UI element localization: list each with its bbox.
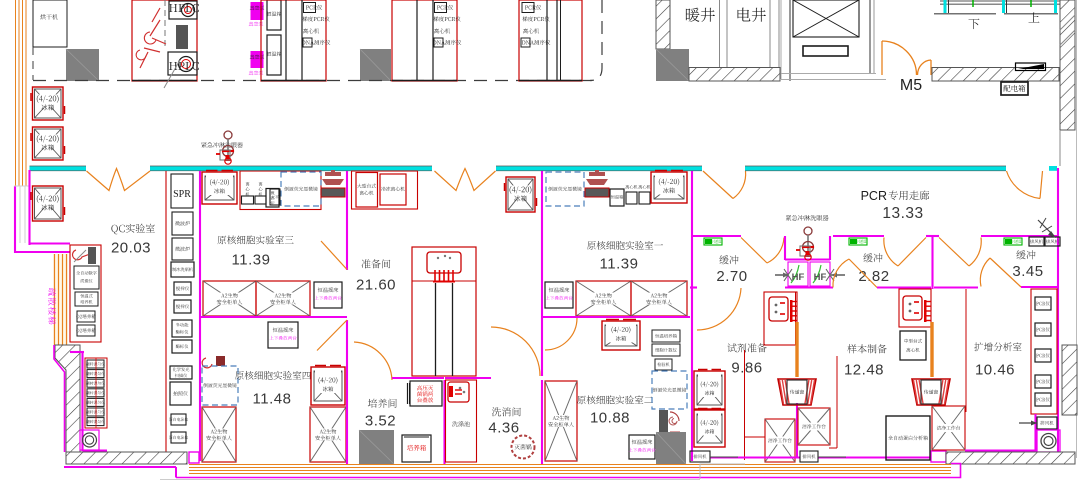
svg-text:2.70: 2.70: [716, 268, 747, 285]
svg-text:21.60: 21.60: [356, 277, 396, 294]
svg-text:10.88: 10.88: [590, 409, 630, 426]
svg-text:9.86: 9.86: [731, 359, 762, 376]
svg-text:11.39: 11.39: [232, 251, 271, 268]
svg-text:SPR: SPR: [173, 189, 191, 200]
svg-text:M5: M5: [900, 77, 922, 94]
svg-text:3.52: 3.52: [365, 412, 396, 429]
svg-text:4.36: 4.36: [488, 419, 519, 436]
svg-text:11.48: 11.48: [253, 390, 292, 407]
svg-text:10.46: 10.46: [975, 361, 1015, 378]
svg-text:13.33: 13.33: [882, 205, 923, 222]
svg-text:HF: HF: [814, 272, 827, 283]
svg-text:HF: HF: [792, 272, 805, 283]
svg-text:2.82: 2.82: [858, 268, 889, 285]
svg-text:11.39: 11.39: [600, 255, 639, 272]
svg-text:3.45: 3.45: [1012, 263, 1043, 280]
svg-text:20.03: 20.03: [111, 239, 151, 256]
svg-text:12.48: 12.48: [844, 361, 884, 378]
svg-text:PCR: PCR: [861, 189, 887, 203]
